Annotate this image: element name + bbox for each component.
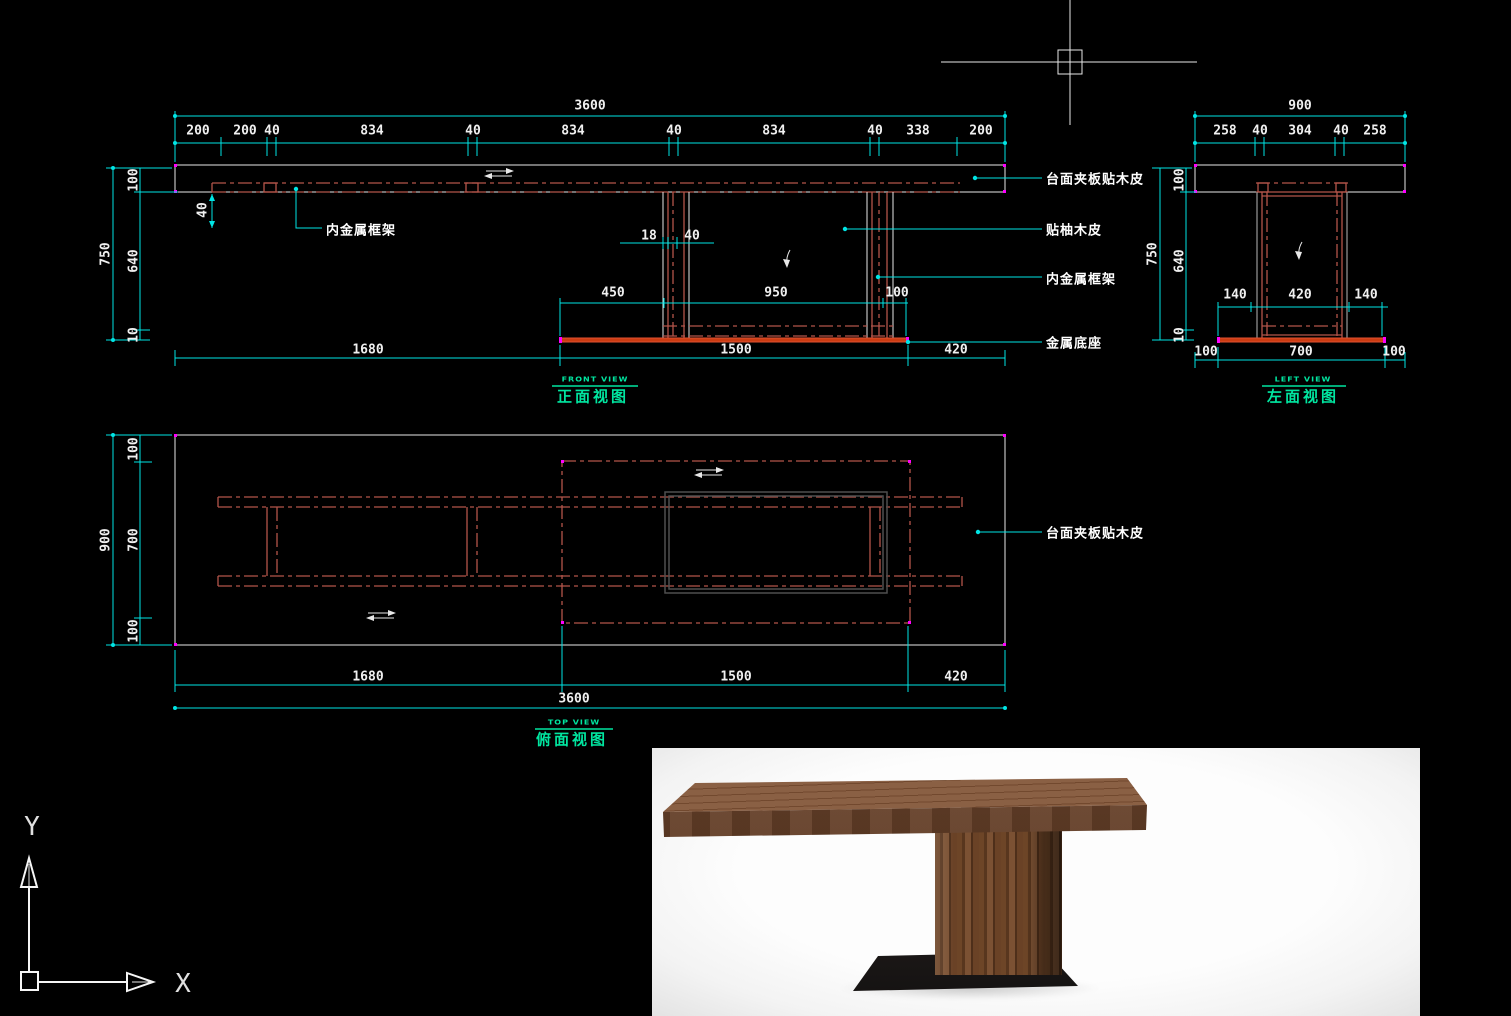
ucs-icon <box>21 858 153 991</box>
dim-left-seg: 420 <box>1288 288 1311 303</box>
dim-front-seg: 834 <box>561 124 584 139</box>
dim-left-seg: 40 <box>1333 124 1349 139</box>
dim-front-seg: 18 <box>641 229 657 244</box>
annotation-metal-base: 金属底座 <box>1046 333 1102 352</box>
annotation-tabletop: 台面夹板贴木皮 <box>1046 169 1144 188</box>
dim-front-seg: 420 <box>944 343 967 358</box>
dim-front-seg: 40 <box>196 202 211 218</box>
left-view-title: 左面视图 <box>1267 386 1339 407</box>
front-view-dimensions <box>106 111 1042 386</box>
dim-left-seg: 140 <box>1223 288 1246 303</box>
dim-front-seg: 200 <box>186 124 209 139</box>
dim-left-height: 750 <box>1146 242 1161 265</box>
dim-front-seg: 834 <box>360 124 383 139</box>
dim-front-seg: 200 <box>233 124 256 139</box>
dim-left-seg: 40 <box>1252 124 1268 139</box>
front-view-title: 正面视图 <box>557 386 629 407</box>
dim-front-seg: 200 <box>969 124 992 139</box>
front-view-geometry <box>174 164 1006 343</box>
table-pedestal-shading <box>935 828 1062 975</box>
annotation-tabletop-top: 台面夹板贴木皮 <box>1046 523 1144 542</box>
annotation-inner-frame: 内金属框架 <box>1046 269 1116 288</box>
dim-left-seg: 100 <box>1194 345 1217 360</box>
ucs-x-label: X <box>175 969 191 999</box>
dim-front-seg: 10 <box>127 327 142 343</box>
dim-top-seg: 100 <box>127 619 142 642</box>
dim-left-seg: 640 <box>1173 249 1188 272</box>
dim-front-seg: 834 <box>762 124 785 139</box>
product-photo <box>652 748 1420 1016</box>
left-view-geometry <box>1194 164 1406 343</box>
dim-front-seg: 1680 <box>352 343 383 358</box>
dim-left-seg: 258 <box>1213 124 1236 139</box>
dim-left-seg: 140 <box>1354 288 1377 303</box>
front-view-subtitle: FRONT VIEW <box>562 375 629 383</box>
dim-left-seg: 258 <box>1363 124 1386 139</box>
cad-drawing-area[interactable]: 3600200200408344083440834403382007501006… <box>0 0 1511 1016</box>
dim-front-seg: 40 <box>666 124 682 139</box>
dim-left-seg: 700 <box>1289 345 1312 360</box>
dim-front-seg: 338 <box>906 124 929 139</box>
dim-front-seg: 40 <box>684 229 700 244</box>
dim-front-seg: 950 <box>764 286 787 301</box>
dim-left-seg: 10 <box>1173 327 1188 343</box>
top-view-dimensions <box>106 433 1042 729</box>
dim-front-seg: 450 <box>601 286 624 301</box>
dim-left-total: 900 <box>1288 99 1311 114</box>
top-view-title: 俯面视图 <box>536 729 608 750</box>
annotation-inner-frame-left: 内金属框架 <box>326 220 396 239</box>
dim-front-seg: 1500 <box>720 343 751 358</box>
top-view-subtitle: TOP VIEW <box>548 718 600 726</box>
dim-left-seg: 100 <box>1173 168 1188 191</box>
dim-top-total: 3600 <box>558 692 589 707</box>
dim-front-seg: 100 <box>885 286 908 301</box>
dim-top-seg: 420 <box>944 670 967 685</box>
dim-left-seg: 100 <box>1382 345 1405 360</box>
dim-top-seg: 100 <box>127 437 142 460</box>
dim-front-height: 750 <box>99 242 114 265</box>
top-view-geometry <box>174 434 1006 646</box>
dim-left-seg: 304 <box>1288 124 1311 139</box>
dim-top-seg: 700 <box>127 528 142 551</box>
dim-front-seg: 40 <box>867 124 883 139</box>
dim-top-depth: 900 <box>99 528 114 551</box>
dim-top-seg: 1500 <box>720 670 751 685</box>
crosshair-cursor <box>941 0 1197 125</box>
dim-front-seg: 640 <box>127 249 142 272</box>
left-view-subtitle: LEFT VIEW <box>1275 375 1332 383</box>
left-view-dimensions <box>1152 111 1407 386</box>
dim-front-seg: 100 <box>127 168 142 191</box>
annotation-veneer: 贴柚木皮 <box>1046 220 1102 239</box>
dim-front-seg: 40 <box>465 124 481 139</box>
ucs-y-label: Y <box>24 812 40 842</box>
dim-front-seg: 40 <box>264 124 280 139</box>
dim-top-seg: 1680 <box>352 670 383 685</box>
dim-front-total: 3600 <box>574 99 605 114</box>
